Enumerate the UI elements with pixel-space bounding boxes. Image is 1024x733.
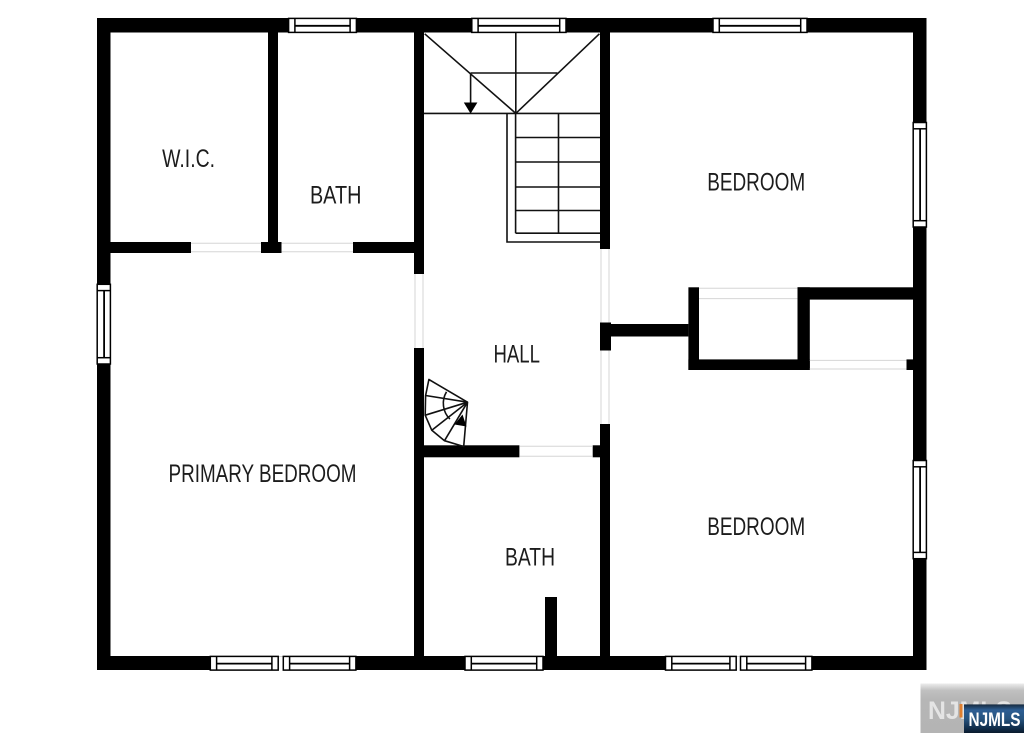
svg-text:HALL: HALL xyxy=(493,341,540,369)
svg-text:PRIMARY BEDROOM: PRIMARY BEDROOM xyxy=(169,460,357,488)
svg-text:NJMLS: NJMLS xyxy=(969,710,1021,731)
svg-text:W.I.C.: W.I.C. xyxy=(162,145,215,173)
svg-text:BATH: BATH xyxy=(310,182,362,210)
svg-text:BEDROOM: BEDROOM xyxy=(707,513,805,541)
svg-text:BEDROOM: BEDROOM xyxy=(707,169,805,197)
svg-text:BATH: BATH xyxy=(505,544,555,572)
